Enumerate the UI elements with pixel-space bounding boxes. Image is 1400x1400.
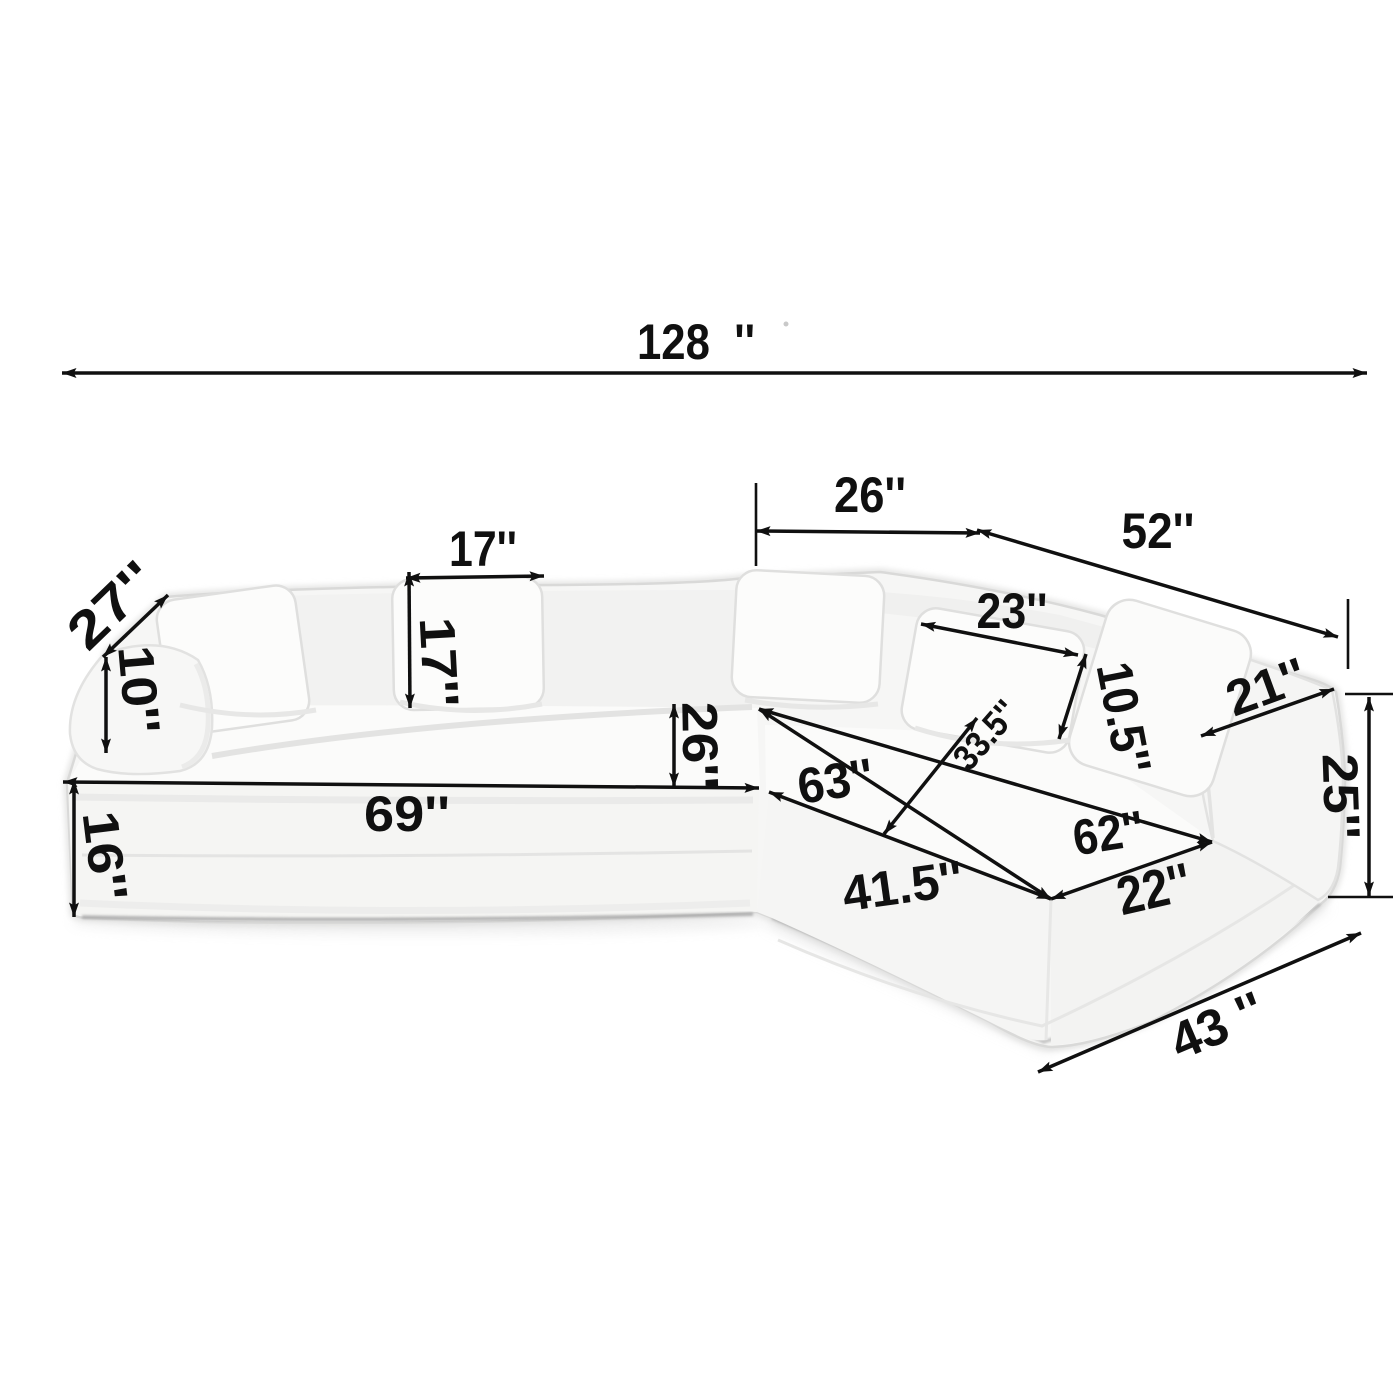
svg-text:62'': 62'' xyxy=(1069,800,1148,866)
svg-text:17'': 17'' xyxy=(449,521,517,577)
svg-text:52'': 52'' xyxy=(1122,503,1195,559)
svg-text:128 '': 128 '' xyxy=(637,314,755,370)
svg-text:17'': 17'' xyxy=(409,616,470,709)
svg-text:10'': 10'' xyxy=(107,643,170,736)
svg-text:63'': 63'' xyxy=(793,748,877,815)
svg-text:16'': 16'' xyxy=(72,808,139,904)
svg-text:26'': 26'' xyxy=(671,701,729,790)
svg-text:23'': 23'' xyxy=(977,583,1048,639)
svg-text:25'': 25'' xyxy=(1312,752,1371,840)
svg-text:26'': 26'' xyxy=(834,467,906,523)
svg-text:69'': 69'' xyxy=(364,786,450,842)
